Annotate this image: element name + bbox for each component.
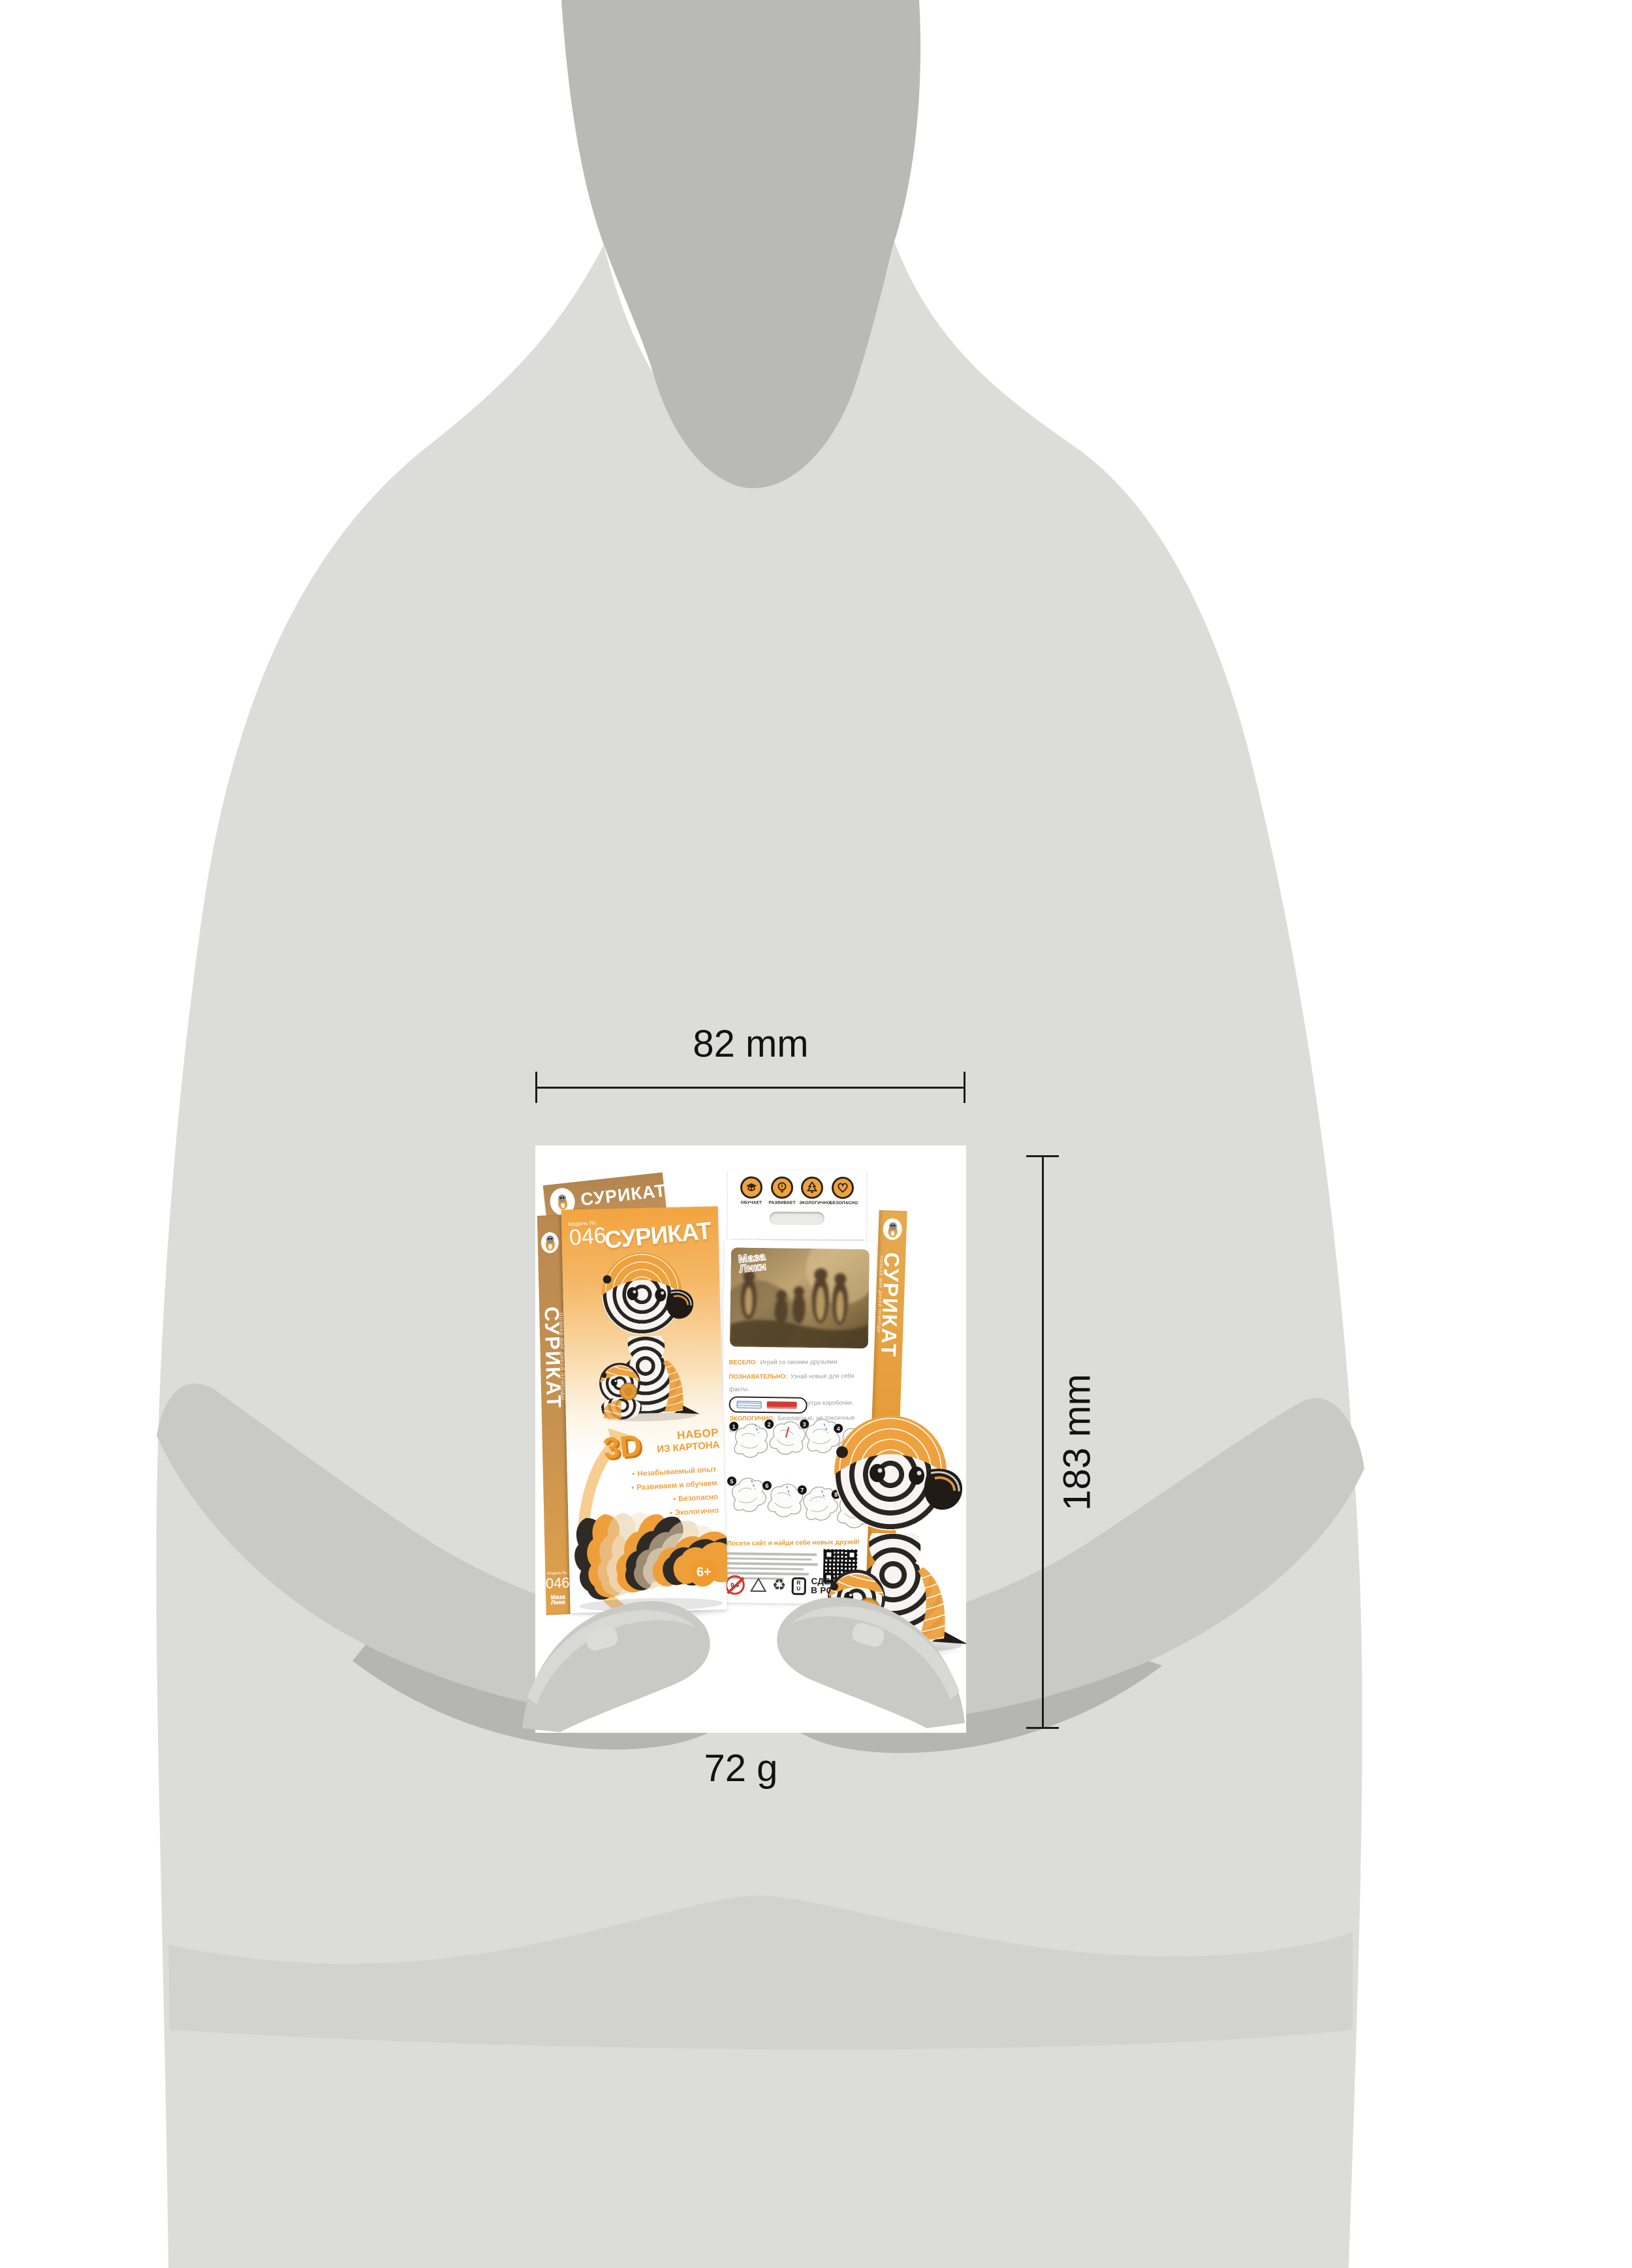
height-tick-top: [1026, 1155, 1059, 1157]
three-d-label: 3D: [602, 1427, 644, 1466]
flap-title: СУРИКАТ: [580, 1180, 667, 1209]
meerkat-3d-figure: [820, 1412, 966, 1654]
cardboard-layers-fan: [571, 1501, 729, 1615]
height-dimension-label: 183 mm: [1056, 1374, 1099, 1511]
height-dimension-line: [1042, 1157, 1044, 1728]
assembled-model-illustration: [582, 1249, 710, 1424]
width-dimension-line: [537, 1087, 965, 1089]
brand-mascot-icon: [541, 1232, 559, 1253]
width-tick-right: [964, 1072, 965, 1103]
spine-bottom: Модель №. 046 Маза Лики: [545, 1571, 570, 1606]
bullet-item: •Развиваем и обучаем: [618, 1480, 717, 1493]
product-photo: ОБУЧАЕТ РАЗВИВАЕТ ЭКОЛОГИЧНО: [535, 1145, 966, 1733]
spine-title: СУРИКАТ: [540, 1306, 566, 1409]
package-front-face: Модель №. 046 СУРИКАТ 3D НАБОР ИЗ КАРТОН…: [561, 1206, 727, 1613]
kit-label: НАБОР ИЗ КАРТОНА: [643, 1426, 720, 1456]
width-dimension-label: 82 mm: [535, 1022, 966, 1066]
product-dimensions-infographic: ОБУЧАЕТ РАЗВИВАЕТ ЭКОЛОГИЧНО: [0, 0, 1632, 2268]
width-tick-left: [535, 1072, 537, 1103]
human-silhouette: [0, 0, 1632, 2268]
height-tick-bottom: [1026, 1727, 1059, 1729]
weight-label: 72 g: [610, 1747, 871, 1790]
